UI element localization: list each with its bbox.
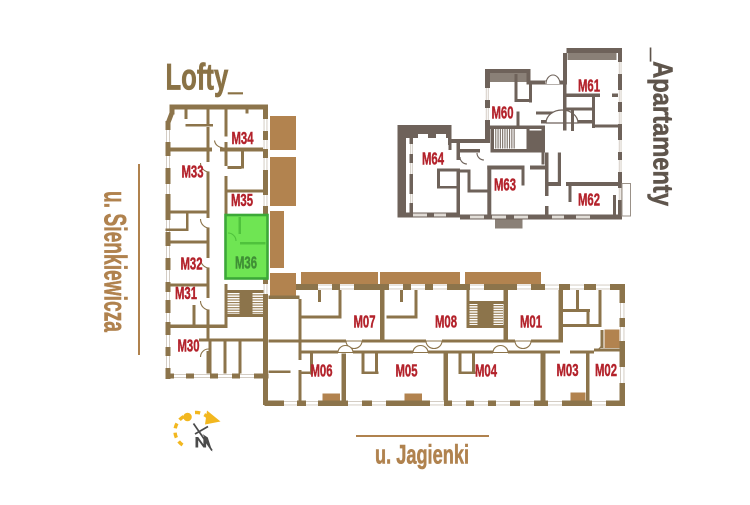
svg-text:u. Jagienki: u. Jagienki xyxy=(375,440,469,470)
svg-text:M07: M07 xyxy=(354,311,376,331)
svg-text:M36: M36 xyxy=(235,252,257,272)
svg-text:M01: M01 xyxy=(520,311,542,331)
svg-text:M06: M06 xyxy=(311,360,333,380)
svg-text:M62: M62 xyxy=(578,189,600,209)
svg-text:M34: M34 xyxy=(232,128,254,148)
svg-text:M61: M61 xyxy=(578,75,600,95)
svg-text:M04: M04 xyxy=(475,360,497,380)
svg-text:M32: M32 xyxy=(181,253,203,273)
svg-text:M33: M33 xyxy=(182,161,204,181)
svg-text:M08: M08 xyxy=(435,311,457,331)
svg-text:M35: M35 xyxy=(231,190,253,210)
svg-text:M05: M05 xyxy=(396,360,418,380)
svg-text:_Apartamenty: _Apartamenty xyxy=(648,47,679,206)
svg-text:M03: M03 xyxy=(557,360,579,380)
svg-text:M63: M63 xyxy=(494,174,516,194)
svg-text:M64: M64 xyxy=(422,148,444,168)
svg-text:u. Sienkiewicza: u. Sienkiewicza xyxy=(98,191,134,332)
svg-text:M31: M31 xyxy=(175,283,197,303)
svg-text:M60: M60 xyxy=(492,102,514,122)
svg-text:M30: M30 xyxy=(178,335,200,355)
svg-text:Lofty_: Lofty_ xyxy=(166,56,243,97)
svg-text:M02: M02 xyxy=(595,360,617,380)
